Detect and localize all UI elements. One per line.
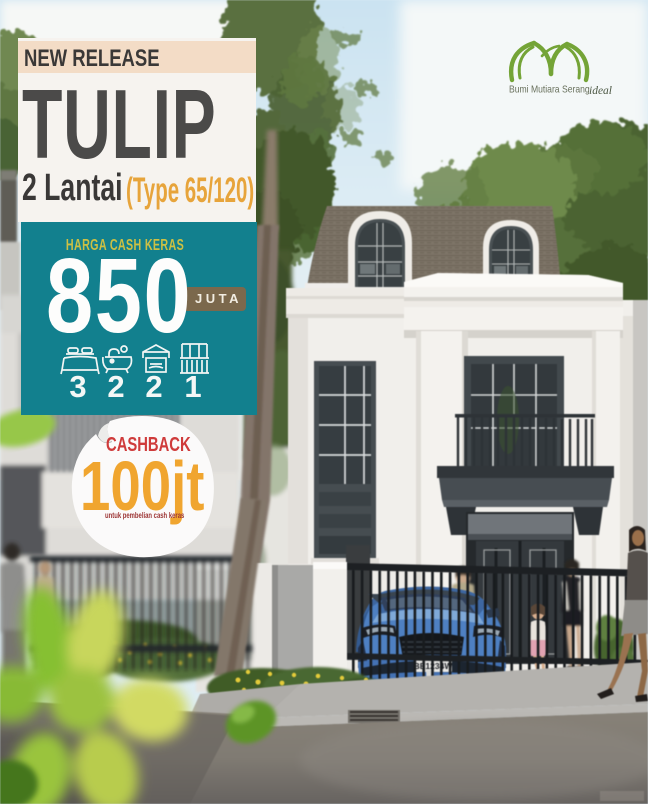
svg-text:ideal: ideal bbox=[589, 85, 612, 97]
svg-text:Bumi Mutiara Serang: Bumi Mutiara Serang bbox=[509, 84, 590, 95]
